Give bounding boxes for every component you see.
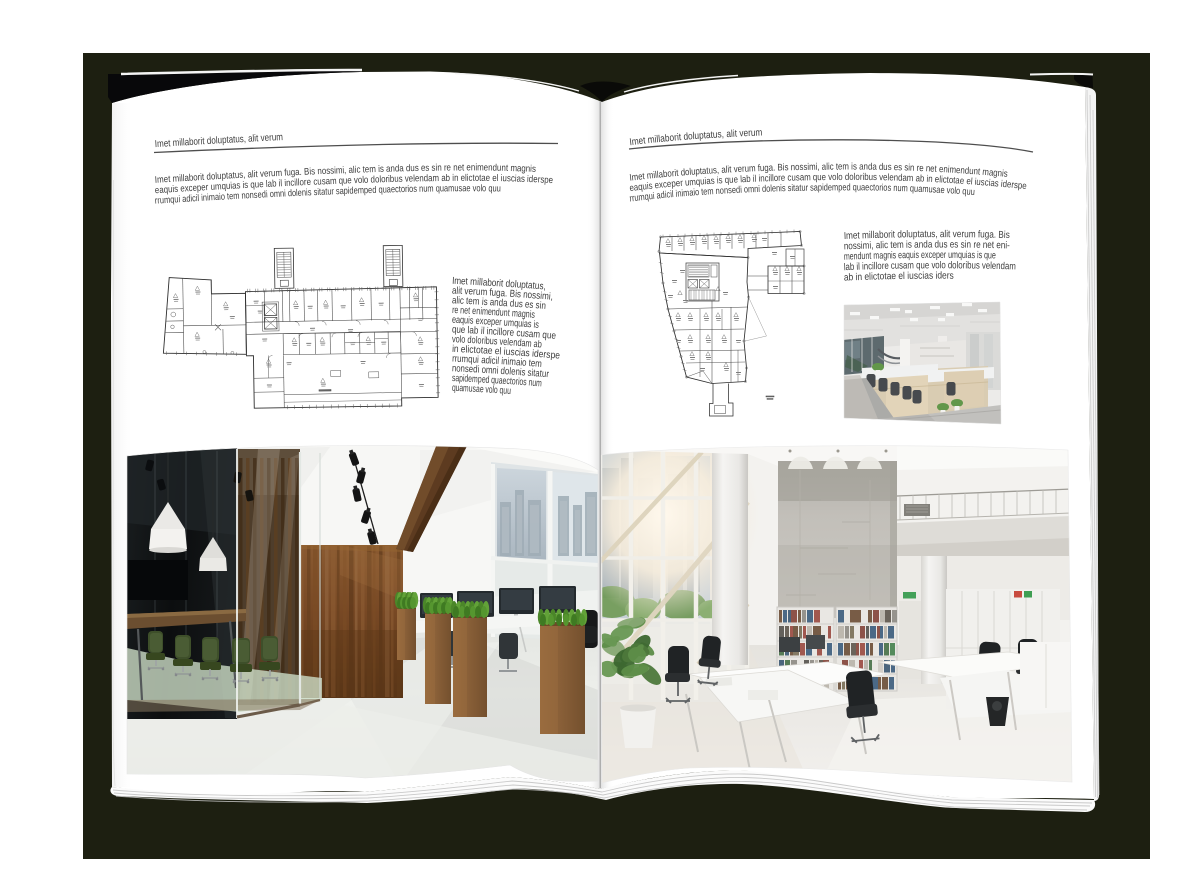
svg-text:ab in elictotae el iuscias ide: ab in elictotae el iuscias iders (844, 271, 954, 284)
